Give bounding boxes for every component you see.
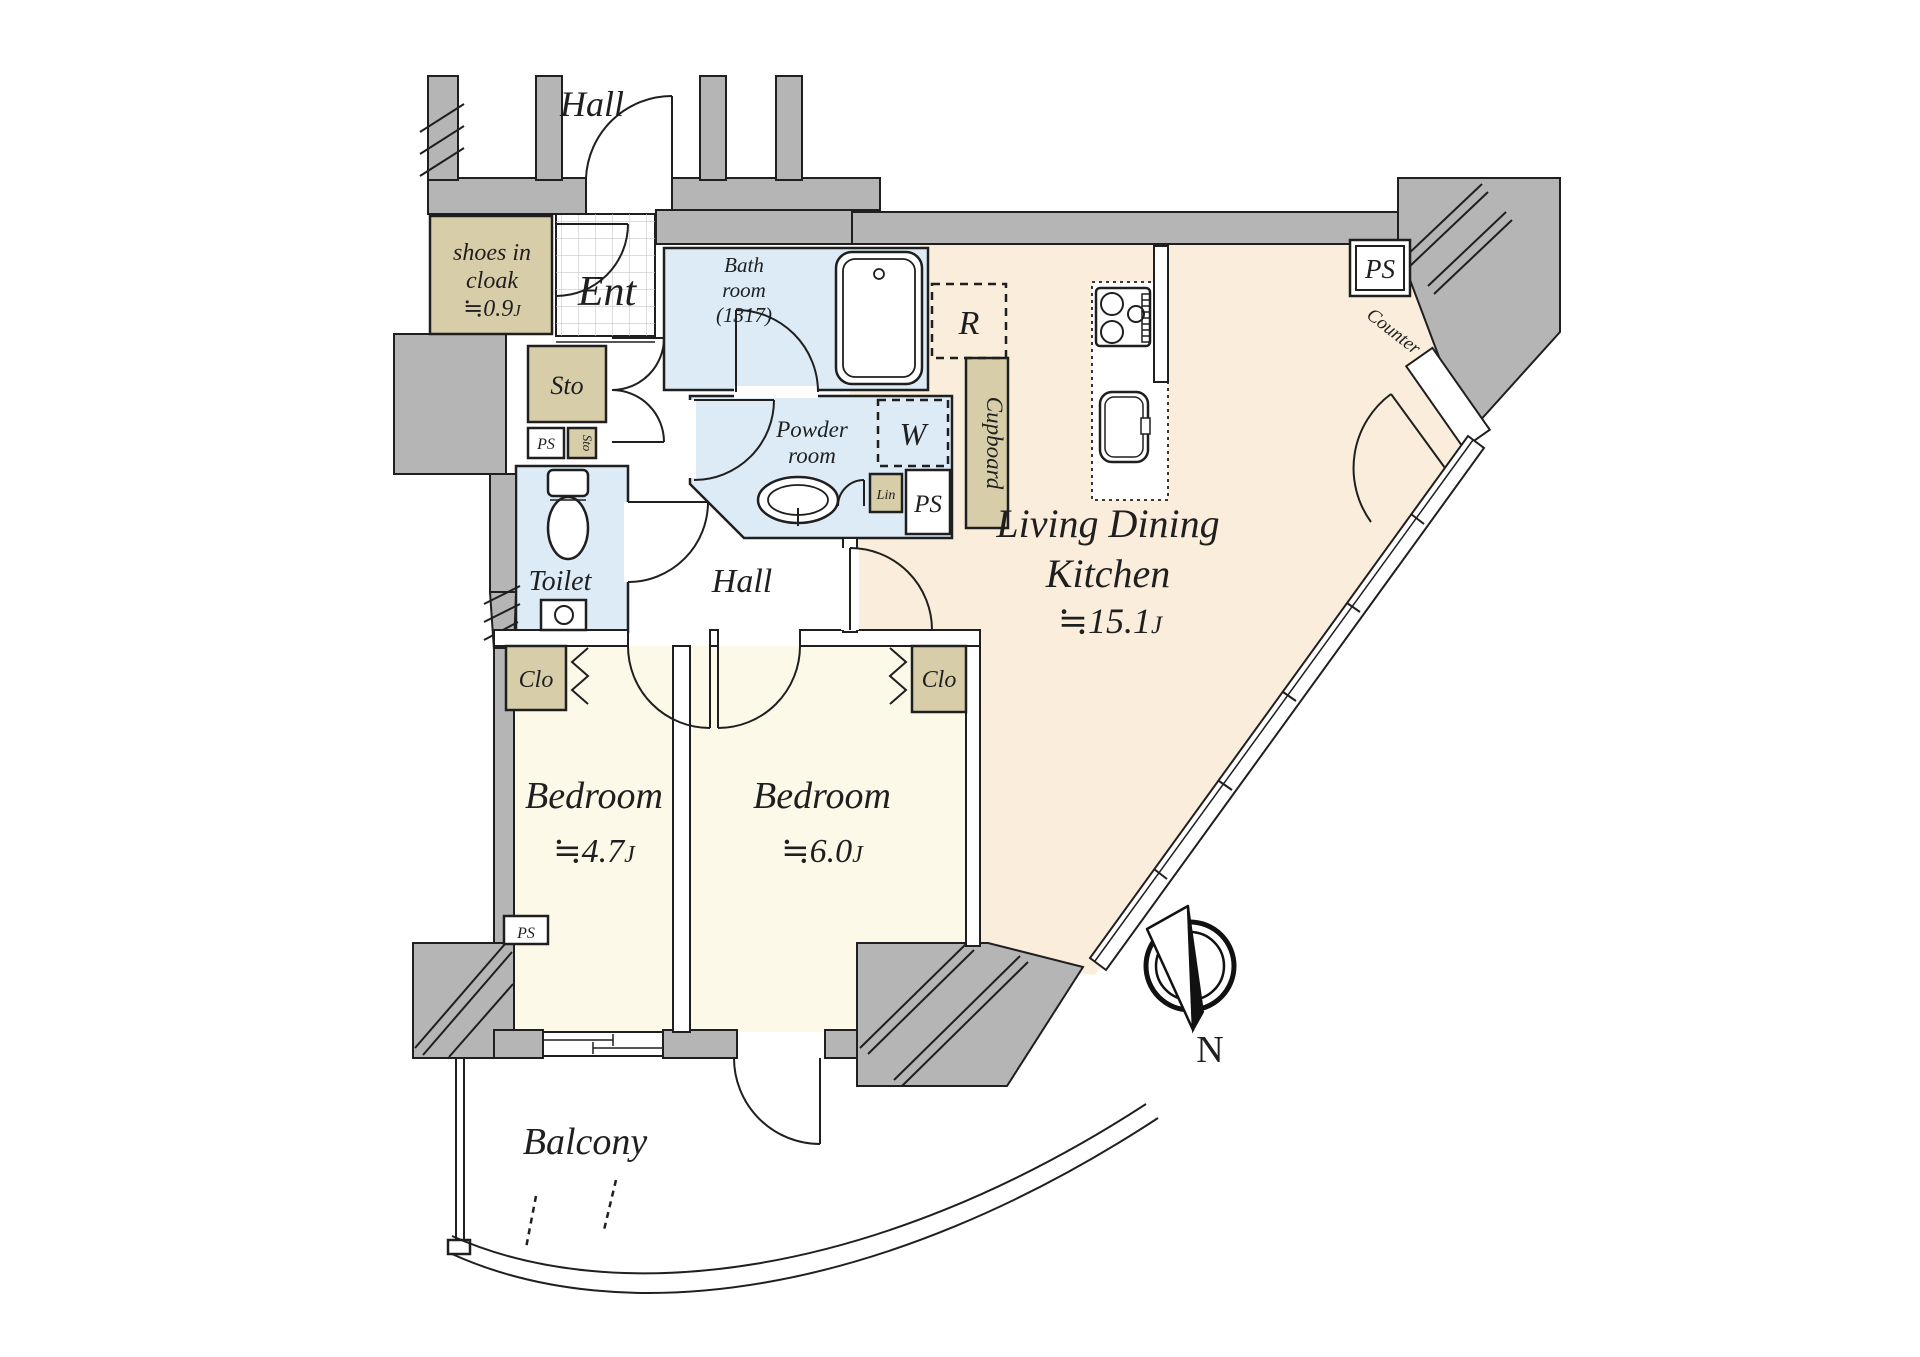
label-shoes-1: shoes in bbox=[453, 240, 531, 266]
stove-icon bbox=[1096, 288, 1150, 346]
label-ps-entry: PS bbox=[536, 436, 555, 453]
label-bath-1: Bath bbox=[724, 253, 764, 277]
label-bath-3: (1317) bbox=[716, 303, 772, 327]
wall-top-right bbox=[672, 178, 880, 214]
wall-band-upper bbox=[656, 210, 880, 244]
bedroom2-balcony-door bbox=[734, 1058, 820, 1144]
wall-stub-3 bbox=[700, 76, 726, 180]
label-powder-2: room bbox=[788, 443, 836, 468]
wall-left-mid bbox=[490, 474, 516, 592]
label-bedroom1-area: ≒4.7J bbox=[553, 833, 636, 870]
label-ldk-2: Kitchen bbox=[1045, 551, 1170, 596]
bathtub-icon bbox=[836, 252, 922, 384]
label-balcony: Balcony bbox=[523, 1121, 648, 1163]
wall-bottom-2 bbox=[663, 1030, 737, 1058]
balcony bbox=[448, 1058, 1158, 1293]
balcony-dividers bbox=[526, 1180, 616, 1248]
wall-stub-2 bbox=[536, 76, 562, 180]
label-powder-1: Powder bbox=[775, 417, 849, 442]
wall-hall-south-2 bbox=[710, 630, 718, 646]
label-linen: Lin bbox=[876, 488, 896, 503]
wall-party bbox=[673, 646, 690, 1032]
wall-left-block-a bbox=[394, 334, 506, 474]
label-bedroom1-name: Bedroom bbox=[525, 775, 663, 817]
label-outside-hall: Hall bbox=[559, 84, 624, 124]
label-ps-bedroom: PS bbox=[516, 925, 535, 942]
wall-bedroom2-right bbox=[966, 640, 980, 946]
label-compass-north: N bbox=[1196, 1029, 1223, 1071]
label-closet2: Clo bbox=[922, 667, 957, 693]
label-washer: W bbox=[900, 416, 930, 452]
label-toilet: Toilet bbox=[529, 566, 593, 597]
wall-hall-south-1 bbox=[494, 630, 628, 646]
label-storage: Sto bbox=[550, 371, 583, 400]
label-bedroom2-area: ≒6.0J bbox=[781, 833, 864, 870]
wall-top-left bbox=[428, 178, 586, 214]
wall-band-ldk bbox=[852, 212, 1398, 244]
label-bedroom2-name: Bedroom bbox=[753, 775, 891, 817]
label-refrigerator: R bbox=[958, 305, 980, 342]
bedroom1-window bbox=[543, 1032, 663, 1056]
label-ldk-area: ≒15.1J bbox=[1058, 601, 1164, 641]
label-storage-small: Sto bbox=[580, 435, 595, 452]
label-ps-kitchen: PS bbox=[1364, 254, 1395, 284]
wall-right-block bbox=[857, 943, 1083, 1086]
wall-stub-4 bbox=[776, 76, 802, 180]
wall-stub-1 bbox=[428, 76, 458, 180]
wall-bottom-1 bbox=[494, 1030, 543, 1058]
toilet-basin bbox=[541, 600, 586, 630]
label-inner-hall: Hall bbox=[711, 563, 772, 600]
label-closet1: Clo bbox=[519, 667, 554, 693]
label-bath-2: room bbox=[722, 278, 766, 302]
sink-icon bbox=[1100, 392, 1150, 462]
label-shoes-2: cloak bbox=[466, 268, 518, 294]
kitchen-counter bbox=[1092, 246, 1168, 500]
label-ps-powder: PS bbox=[913, 491, 942, 518]
label-entrance: Ent bbox=[577, 269, 638, 315]
floor-plan-page: Hall shoes in cloak ≒0.9J Ent Bath room … bbox=[0, 0, 1920, 1357]
compass-icon: N bbox=[1146, 906, 1234, 1071]
floor-plan-canvas: Hall shoes in cloak ≒0.9J Ent Bath room … bbox=[0, 0, 1920, 1357]
label-cupboard: Cupboard bbox=[982, 397, 1007, 490]
label-ldk-1: Living Dining bbox=[995, 501, 1219, 546]
wall-hall-south-3 bbox=[800, 630, 980, 646]
